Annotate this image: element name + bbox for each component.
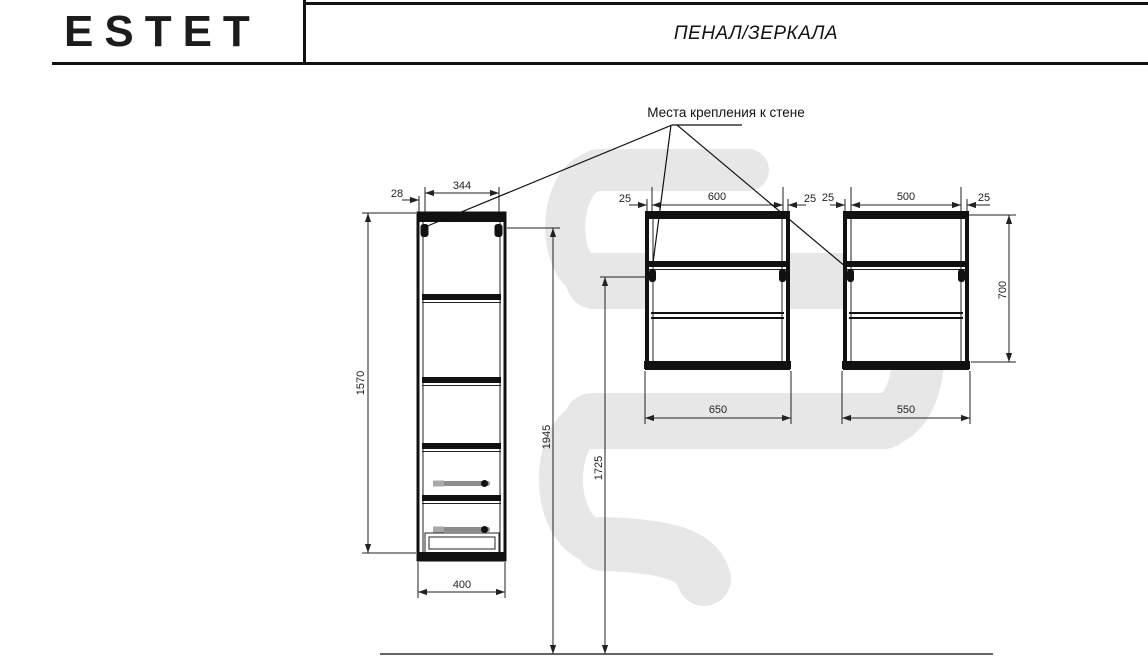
dim-width-500: 500 [897, 191, 915, 203]
spec-sheet-page: ESTET ПЕНАЛ/ЗЕРКАЛА [0, 0, 1148, 670]
dim-offset-right-25: 25 [804, 193, 816, 205]
dim-offset-left-25: 25 [619, 193, 631, 205]
dim-width-650: 650 [709, 404, 727, 416]
dim-width-550: 550 [897, 404, 915, 416]
dim-total-height-1945: 1945 [541, 425, 553, 449]
dim-offset-left-25: 25 [822, 192, 834, 204]
dim-width-400: 400 [453, 579, 471, 591]
mount-bracket-right [495, 224, 503, 237]
dim-width-600: 600 [708, 191, 726, 203]
small-mirror-drawing [842, 213, 970, 369]
dim-mount-height-1725: 1725 [593, 456, 605, 480]
mount-bracket-left [847, 269, 854, 282]
technical-drawing: 28 344 1570 400 1945 [0, 0, 1148, 670]
dim-offset-right-25: 25 [978, 192, 990, 204]
dim-height-700: 700 [997, 281, 1009, 299]
dim-height-1570: 1570 [355, 371, 367, 395]
mount-bracket-left [649, 269, 656, 282]
wall-mount-label: Места крепления к стене [647, 105, 805, 120]
dim-width-344: 344 [453, 180, 471, 192]
drawer-handle-lower [433, 526, 490, 533]
dim-offset-28: 28 [391, 188, 403, 200]
mount-bracket-right [779, 269, 786, 282]
wide-mirror-drawing [644, 213, 791, 369]
tall-cabinet-drawing [418, 213, 505, 560]
mount-bracket-right [958, 269, 965, 282]
drawer-handle-upper [433, 480, 490, 487]
